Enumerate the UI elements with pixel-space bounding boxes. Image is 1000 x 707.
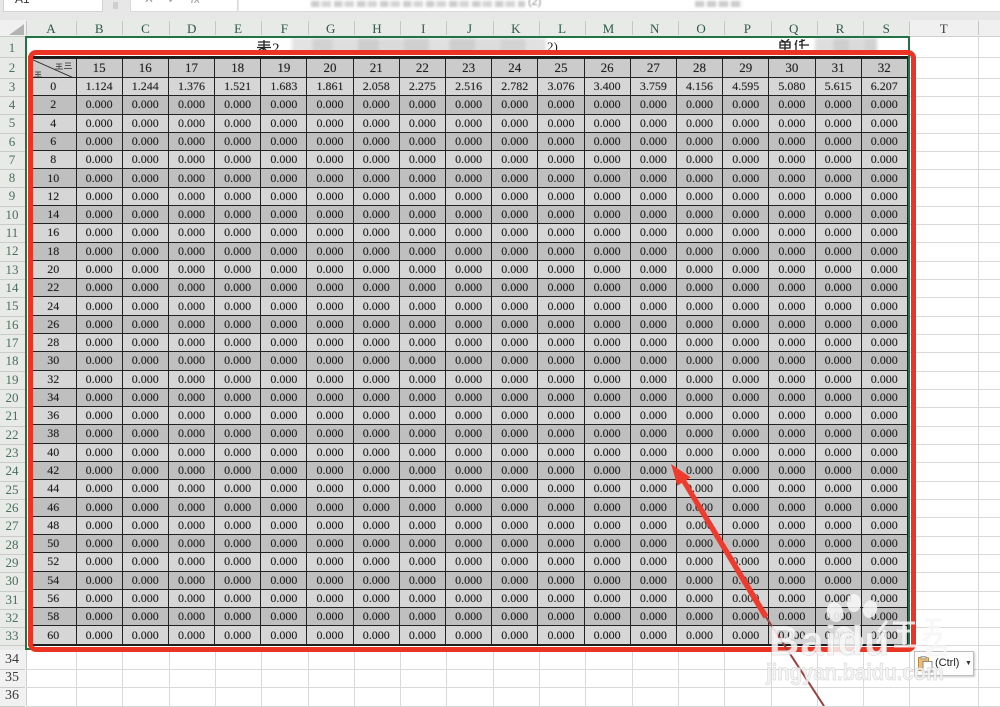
svg-text:jingyan.baidu.com: jingyan.baidu.com [765,659,944,685]
svg-text:Baidu: Baidu [769,617,891,664]
